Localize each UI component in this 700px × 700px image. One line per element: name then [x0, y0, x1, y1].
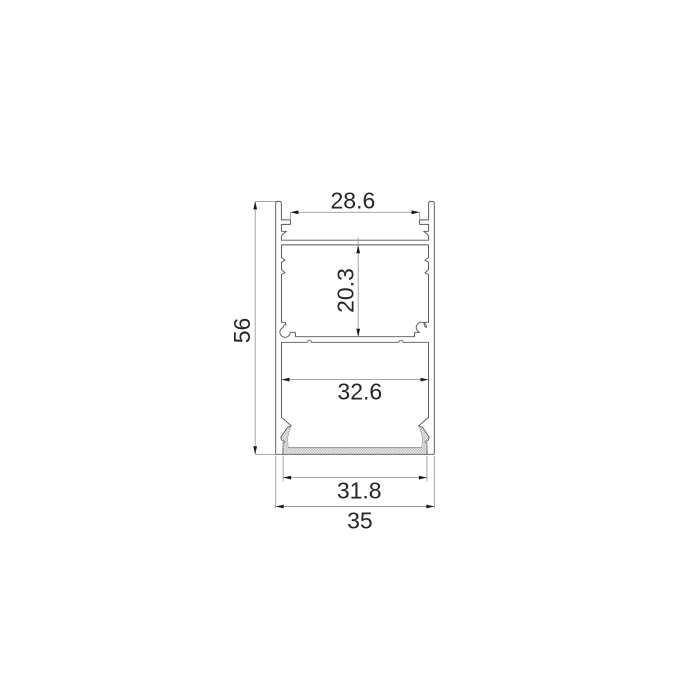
svg-text:20.3: 20.3 — [333, 268, 359, 313]
svg-text:28.6: 28.6 — [331, 187, 376, 213]
svg-text:31.8: 31.8 — [337, 477, 382, 503]
svg-text:56: 56 — [229, 318, 255, 344]
svg-text:35: 35 — [347, 508, 373, 534]
svg-text:32.6: 32.6 — [337, 379, 382, 405]
